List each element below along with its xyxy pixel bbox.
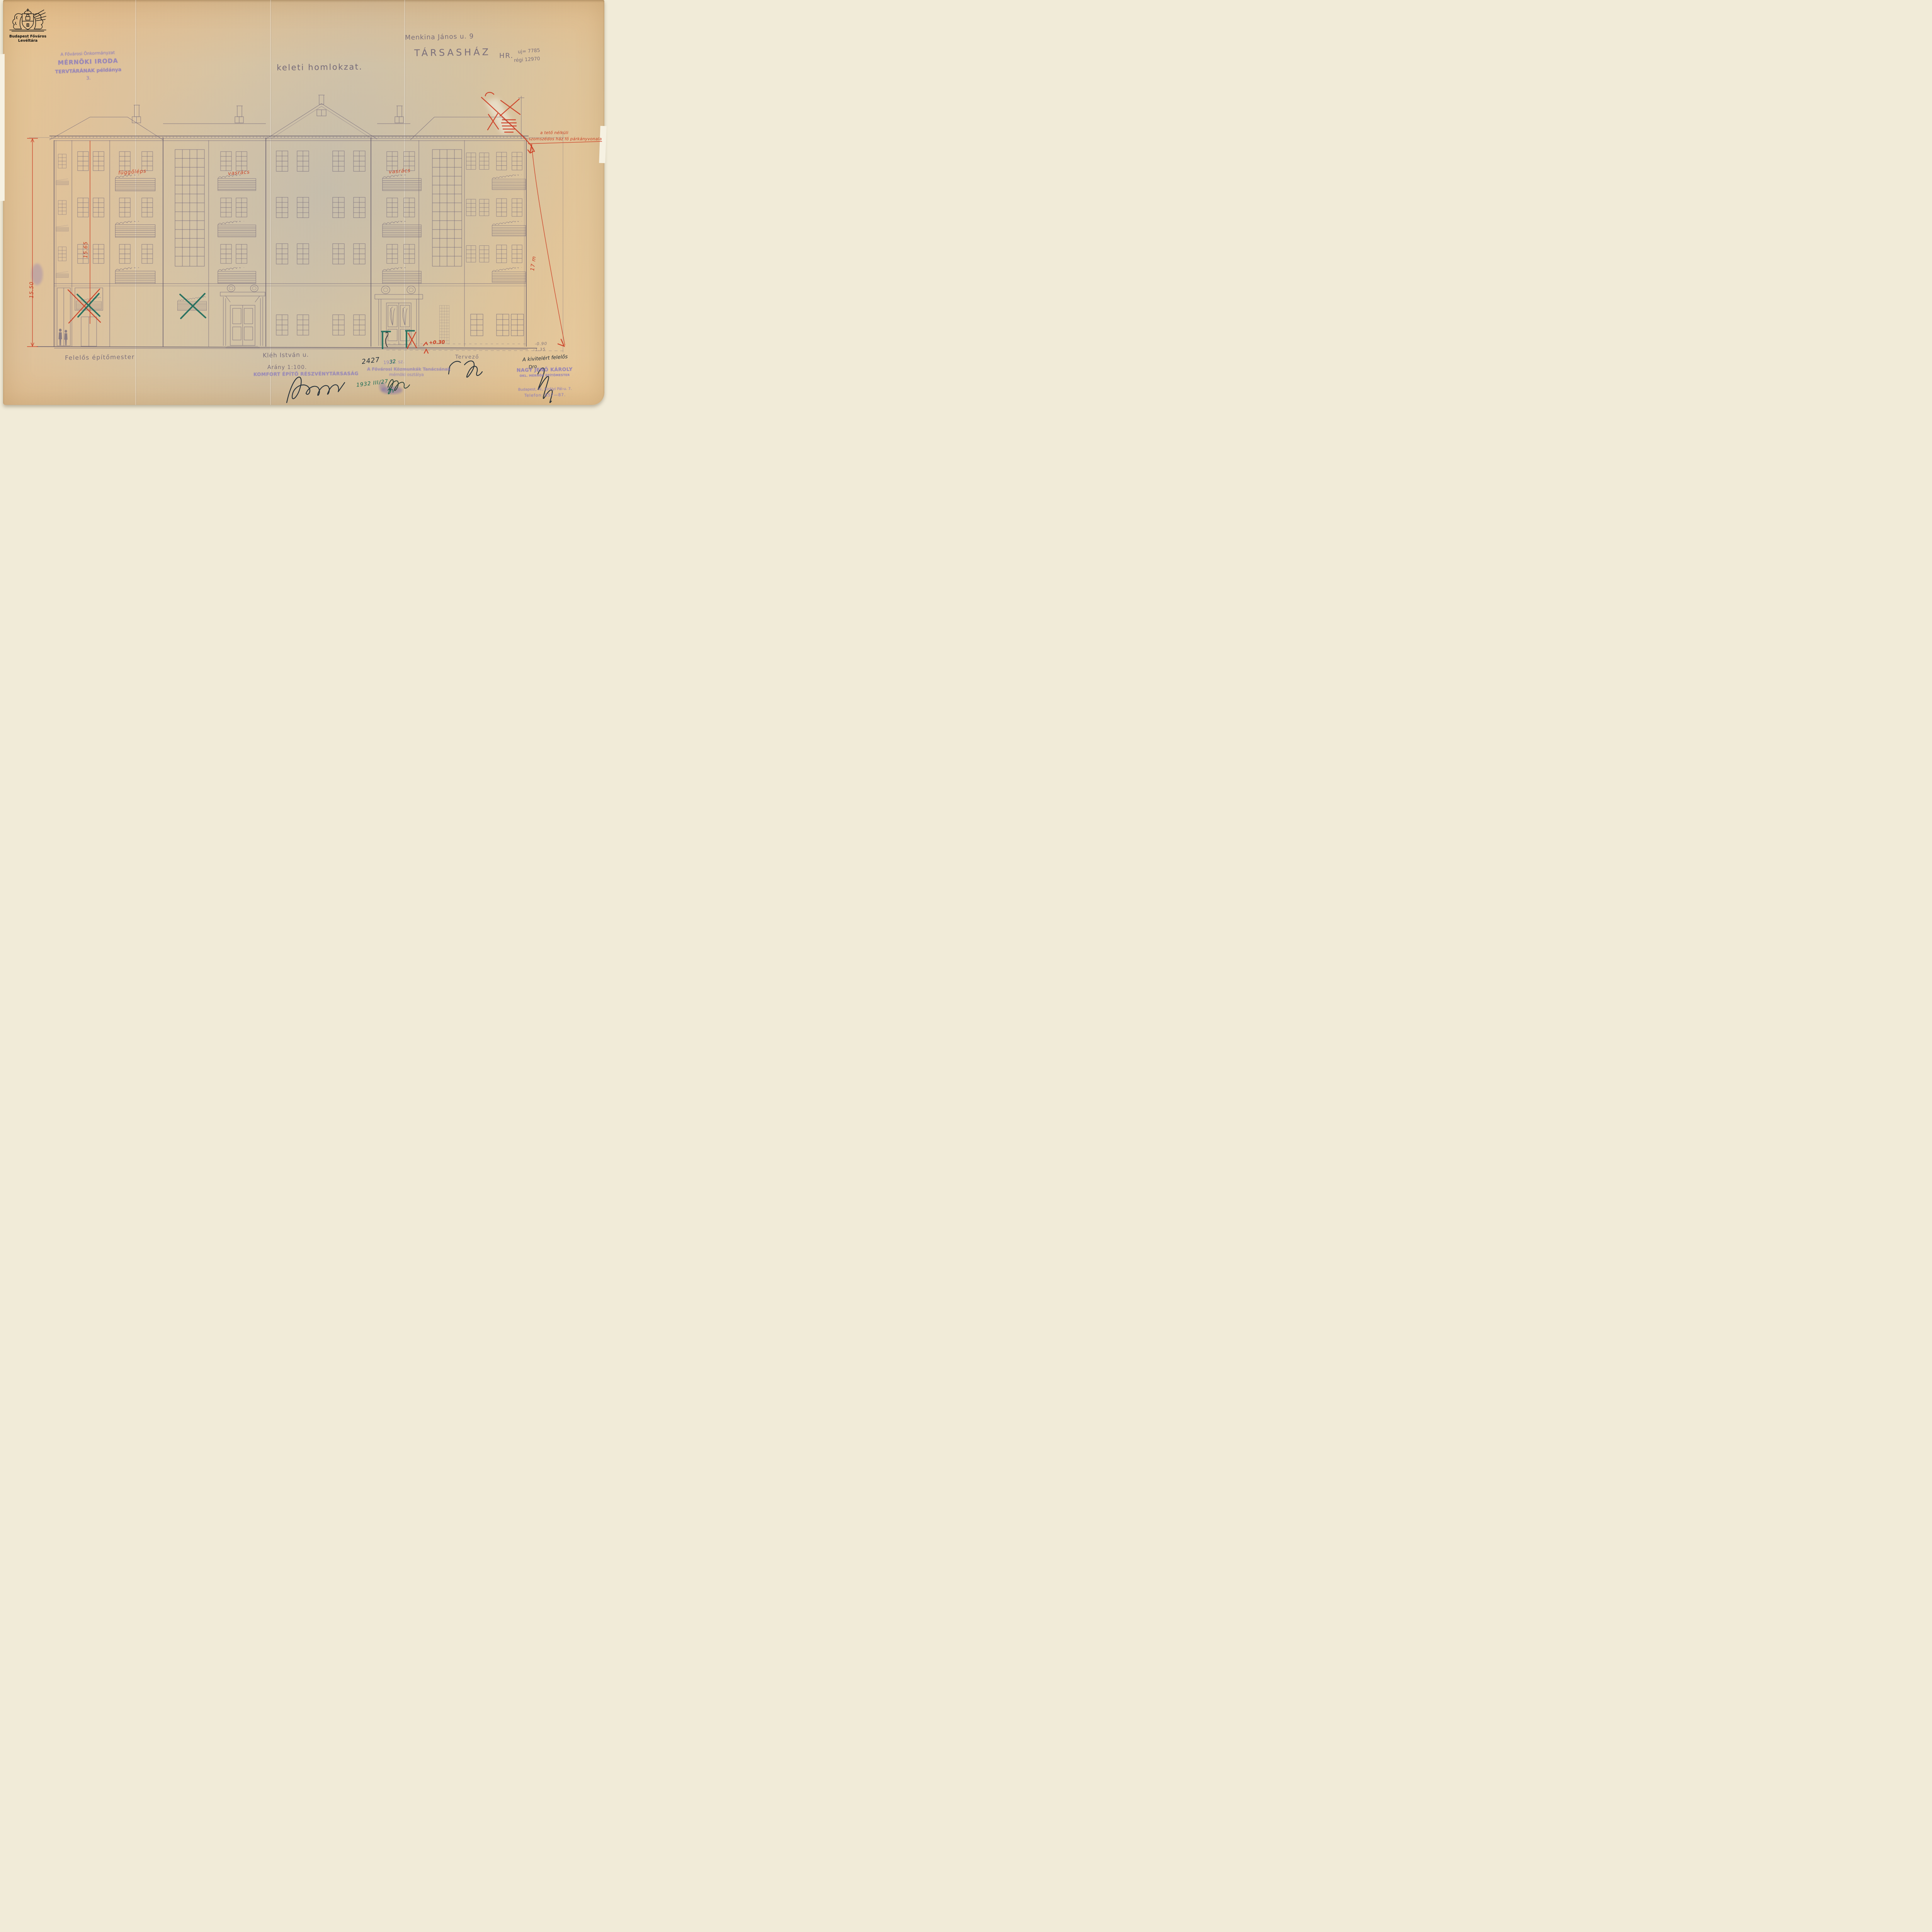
archive-coat-of-arms-icon	[6, 8, 49, 32]
stamp-line: OKL. MÉRNÖK ÉPÍTŐMESTER	[515, 373, 574, 378]
designer-label: Tervező	[455, 354, 479, 360]
building-type: TÁRSASHÁZ	[414, 47, 491, 59]
dimension-left: 15.50	[29, 281, 35, 298]
scanned-drawing: Budapest Főváros Levéltára A Fővárosi Ön…	[0, 0, 606, 414]
drawing-title: keleti homlokzat.	[277, 62, 363, 72]
file-year-green-overwrite: 32	[389, 359, 396, 365]
plan-repository-stamp: A Fővárosi Önkormányzat MÉRNÖKI IRODA TE…	[43, 49, 134, 82]
archive-logo: Budapest Főváros Levéltára	[6, 8, 49, 43]
hr-label: HR.	[499, 52, 514, 60]
level-plus: +0.30	[429, 339, 445, 345]
komfort-stamp: KOMFORT ÉPÍTŐ RÉSZVÉNYTÁRSASÁG	[253, 371, 342, 377]
file-suffix: sz.	[398, 359, 405, 365]
nagy-jeno-stamp: NAGY JENŐ KÁROLY OKL. MÉRNÖK ÉPÍTŐMESTER…	[515, 366, 574, 398]
responsible-builder-label: Felelős építőmester	[65, 354, 135, 362]
stamp-line: Budapest, IV., Királyi Pál-u. 7.	[515, 387, 574, 392]
level-minus-090: -0.90	[535, 341, 548, 346]
stamp-line: TERVTÁRÁNAK példánya	[43, 66, 133, 75]
stamp-line: NAGY JENŐ KÁROLY	[515, 366, 574, 373]
stamp-line: MÉRNÖKI IRODA	[43, 57, 133, 67]
public-works-stamp: A Fővárosi Közmunkák Tanácsának mérnöki …	[367, 367, 446, 377]
torn-edge	[0, 54, 5, 201]
archive-label: Budapest Főváros Levéltára	[6, 34, 49, 43]
stamp-line: A Fővárosi Közmunkák Tanácsának	[367, 367, 446, 372]
red-note-line2: szomszédos ház fő párkányvonala	[529, 137, 602, 141]
dimension-inner: 15.65	[83, 241, 89, 258]
scale-label: Arány 1:100.	[267, 364, 307, 371]
stamp-line: mérnöki osztálya	[367, 372, 446, 377]
red-note-line1: a tető nélküli	[540, 131, 568, 135]
torn-edge	[599, 126, 606, 163]
level-minus-135: -1.35	[533, 347, 546, 352]
street-label-bottom: Kléh István u.	[263, 351, 309, 359]
street-address: Menkina János u. 9	[405, 32, 474, 42]
